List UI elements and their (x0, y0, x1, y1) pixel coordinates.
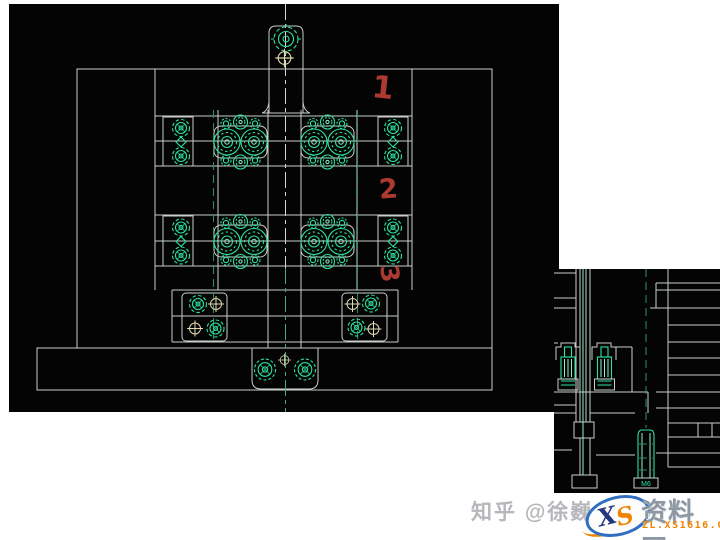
screenshot-stage: M6 1 2 3 知乎 @徐巍 X S 资料网 ZL.XS1616.COM (0, 0, 720, 540)
zhihu-watermark-text: 知乎 @徐巍 (471, 496, 593, 526)
step-annotation-3: 3 (376, 263, 403, 283)
pin-size-label: M6 (641, 481, 651, 488)
section-view-background (554, 269, 720, 493)
step-annotation-1: 1 (370, 72, 395, 105)
step-annotation-2: 2 (378, 175, 399, 203)
cad-drawing-canvas: M6 (0, 0, 720, 540)
site-url: ZL.XS1616.COM (642, 520, 720, 531)
site-name: 资料网 (641, 492, 720, 540)
